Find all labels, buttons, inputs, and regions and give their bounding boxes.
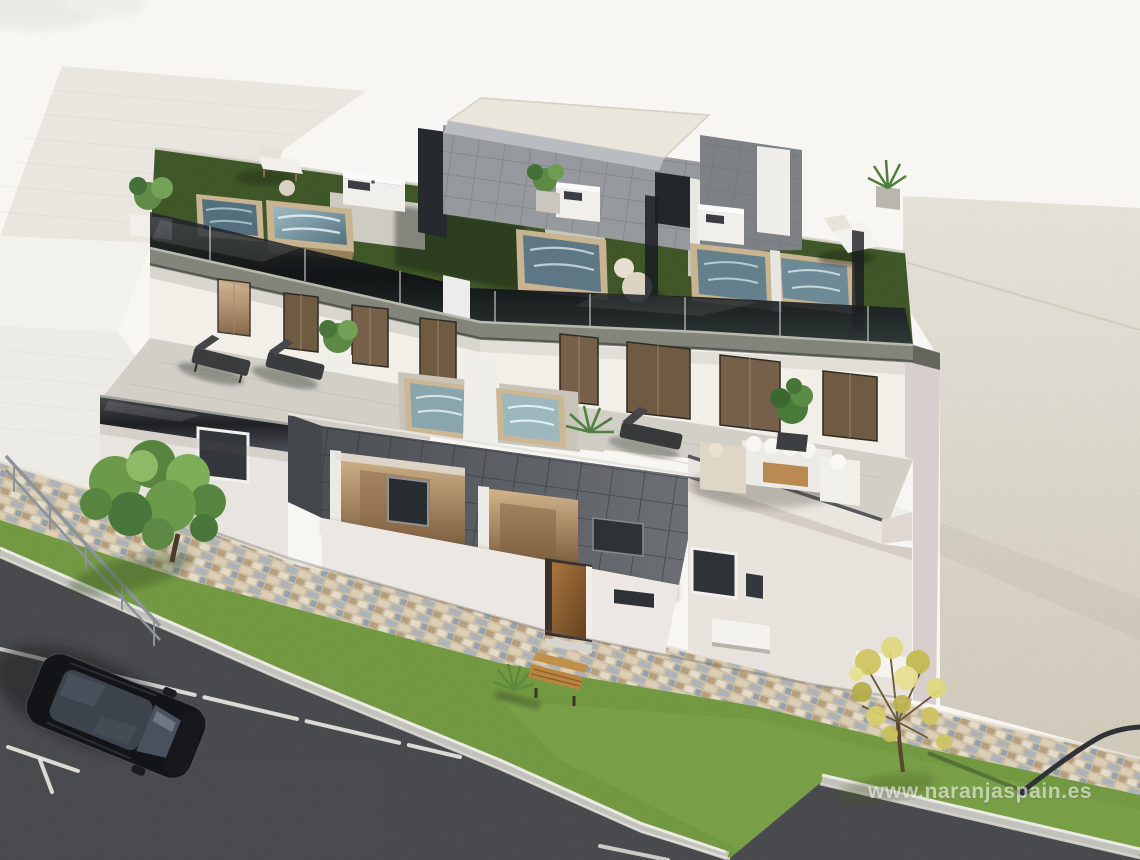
outdoor-kitchen bbox=[698, 204, 744, 245]
balustrade-pier bbox=[443, 275, 470, 320]
rooftop-divider-wall bbox=[757, 146, 790, 236]
armchair bbox=[700, 442, 746, 494]
outdoor-kitchen bbox=[556, 182, 600, 222]
dark-window bbox=[593, 518, 643, 556]
window bbox=[745, 572, 764, 600]
terrace-pool bbox=[496, 388, 566, 448]
watermark-text: www.naranjaspain.es bbox=[868, 780, 1128, 804]
side-table bbox=[279, 180, 295, 196]
penthouse-doorway bbox=[655, 172, 690, 228]
scene-canvas bbox=[0, 0, 1140, 860]
dark-window bbox=[388, 477, 428, 526]
window bbox=[692, 548, 736, 598]
pool-divider-wall bbox=[463, 352, 500, 446]
roof-pool bbox=[516, 229, 608, 300]
render-image: www.naranjaspain.es bbox=[0, 0, 1140, 860]
entrance-door bbox=[552, 562, 588, 638]
glass-privacy-screen bbox=[645, 195, 658, 298]
penthouse-glass-screen bbox=[418, 128, 447, 238]
